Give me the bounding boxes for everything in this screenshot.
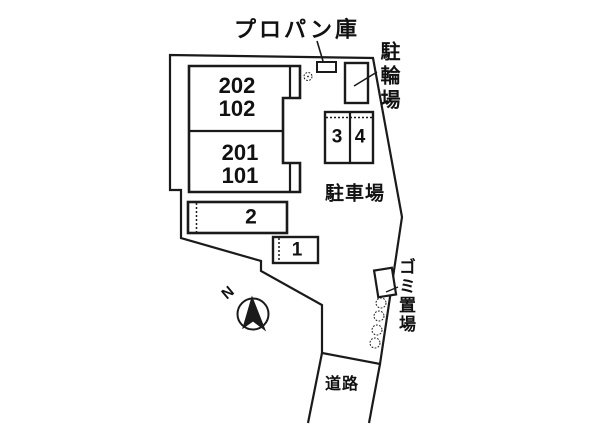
bicycle-parking-label: 駐輪場 — [378, 41, 398, 113]
room-102-label: 102 — [219, 98, 256, 120]
car-parking-label: 駐車場 — [325, 185, 385, 204]
parking-space-2-box — [188, 202, 287, 233]
propane-storage-box — [317, 62, 336, 72]
room-202-label: 202 — [219, 75, 256, 97]
garbage-area-box — [374, 268, 396, 297]
utility-pole-icon — [304, 73, 312, 81]
room-101-label: 101 — [222, 165, 259, 187]
parking-space-1-label: 1 — [292, 241, 303, 260]
bicycle-parking-box — [345, 63, 368, 103]
parking-space-4-label: 4 — [355, 128, 366, 147]
site-plan: プロパン庫 駐輪場 駐車場 ゴミ置場 道路 N 202 102 201 101 … — [0, 0, 600, 424]
north-arrow-icon — [238, 297, 269, 330]
road-right-edge — [369, 364, 380, 423]
site-plan-drawing — [0, 0, 600, 424]
road-label: 道路 — [325, 377, 359, 393]
road-left-edge — [308, 353, 322, 423]
parking-space-3-label: 3 — [332, 128, 343, 147]
room-201-label: 201 — [222, 142, 259, 164]
garbage-area-label: ゴミ置場 — [397, 258, 414, 334]
parking-space-2-label: 2 — [245, 207, 257, 228]
propane-label: プロパン庫 — [234, 19, 360, 41]
